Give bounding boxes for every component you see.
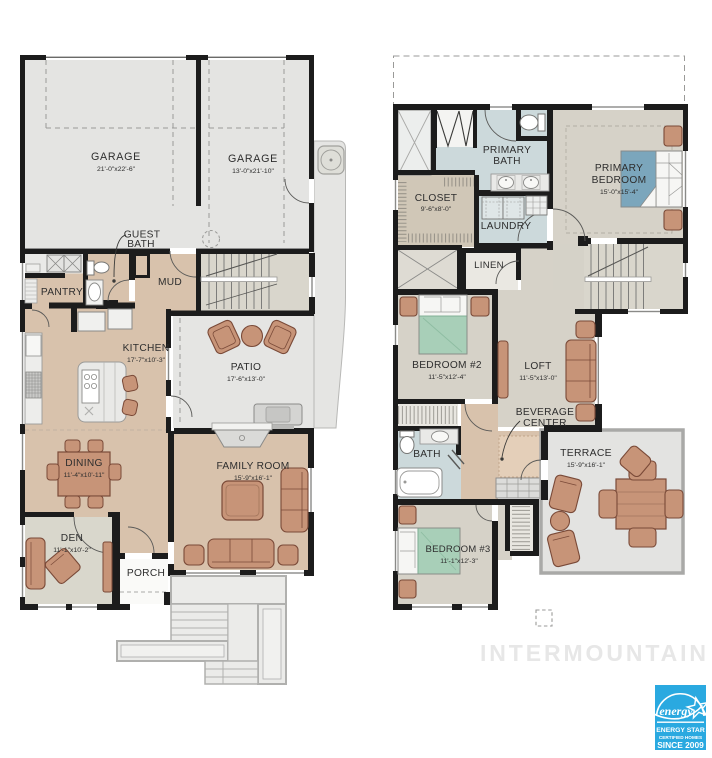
svg-text:15'-0"x15'-4": 15'-0"x15'-4" [600,189,639,196]
svg-text:KITCHEN: KITCHEN [123,343,170,354]
svg-text:9'-6"x8'-0": 9'-6"x8'-0" [421,206,452,213]
svg-text:LINEN: LINEN [474,260,504,271]
svg-text:17'-7"x10'-3": 17'-7"x10'-3" [127,357,166,364]
svg-text:BATH: BATH [127,239,155,250]
svg-text:11'-5"x12'-4": 11'-5"x12'-4" [428,374,466,381]
svg-text:17'-6"x13'-0": 17'-6"x13'-0" [227,376,266,383]
svg-text:DEN: DEN [61,533,83,544]
svg-text:BEDROOM: BEDROOM [592,175,647,186]
svg-text:PANTRY: PANTRY [41,287,83,298]
svg-text:MUD: MUD [158,277,182,288]
svg-text:INTERMOUNTAIN: INTERMOUNTAIN [480,640,709,666]
svg-text:BATH: BATH [493,156,521,167]
svg-text:BEDROOM #3: BEDROOM #3 [426,544,491,555]
svg-text:SINCE 2009: SINCE 2009 [657,740,704,750]
svg-text:CLOSET: CLOSET [415,193,458,204]
svg-text:DINING: DINING [65,458,102,469]
svg-text:11'-1"x10'-2": 11'-1"x10'-2" [53,547,91,554]
svg-text:CENTER: CENTER [523,418,567,429]
svg-text:PORCH: PORCH [127,568,165,579]
svg-text:BEVERAGE: BEVERAGE [516,407,574,418]
svg-text:15'-9"x16'-1": 15'-9"x16'-1" [234,475,273,482]
svg-text:FAMILY ROOM: FAMILY ROOM [216,461,289,472]
svg-text:TERRACE: TERRACE [560,448,612,459]
svg-text:BEDROOM #2: BEDROOM #2 [412,360,482,371]
svg-text:BATH: BATH [413,449,441,460]
svg-text:LOFT: LOFT [524,361,551,372]
svg-text:LAUNDRY: LAUNDRY [481,221,532,232]
svg-text:GARAGE: GARAGE [91,151,141,163]
svg-text:11'-5"x13'-0": 11'-5"x13'-0" [519,375,557,382]
svg-text:PRIMARY: PRIMARY [483,145,531,156]
svg-text:PRIMARY: PRIMARY [595,163,643,174]
svg-text:ENERGY STAR: ENERGY STAR [656,727,705,734]
svg-text:21'-0"x22'-6": 21'-0"x22'-6" [97,166,136,173]
svg-text:11'-4"x10'-11": 11'-4"x10'-11" [64,472,105,479]
svg-text:13'-0"x21'-10": 13'-0"x21'-10" [232,168,274,175]
svg-text:15'-9"x16'-1": 15'-9"x16'-1" [567,462,606,469]
svg-text:11'-1"x12'-3": 11'-1"x12'-3" [440,558,478,565]
svg-text:GARAGE: GARAGE [228,153,278,165]
svg-text:PATIO: PATIO [231,362,262,373]
